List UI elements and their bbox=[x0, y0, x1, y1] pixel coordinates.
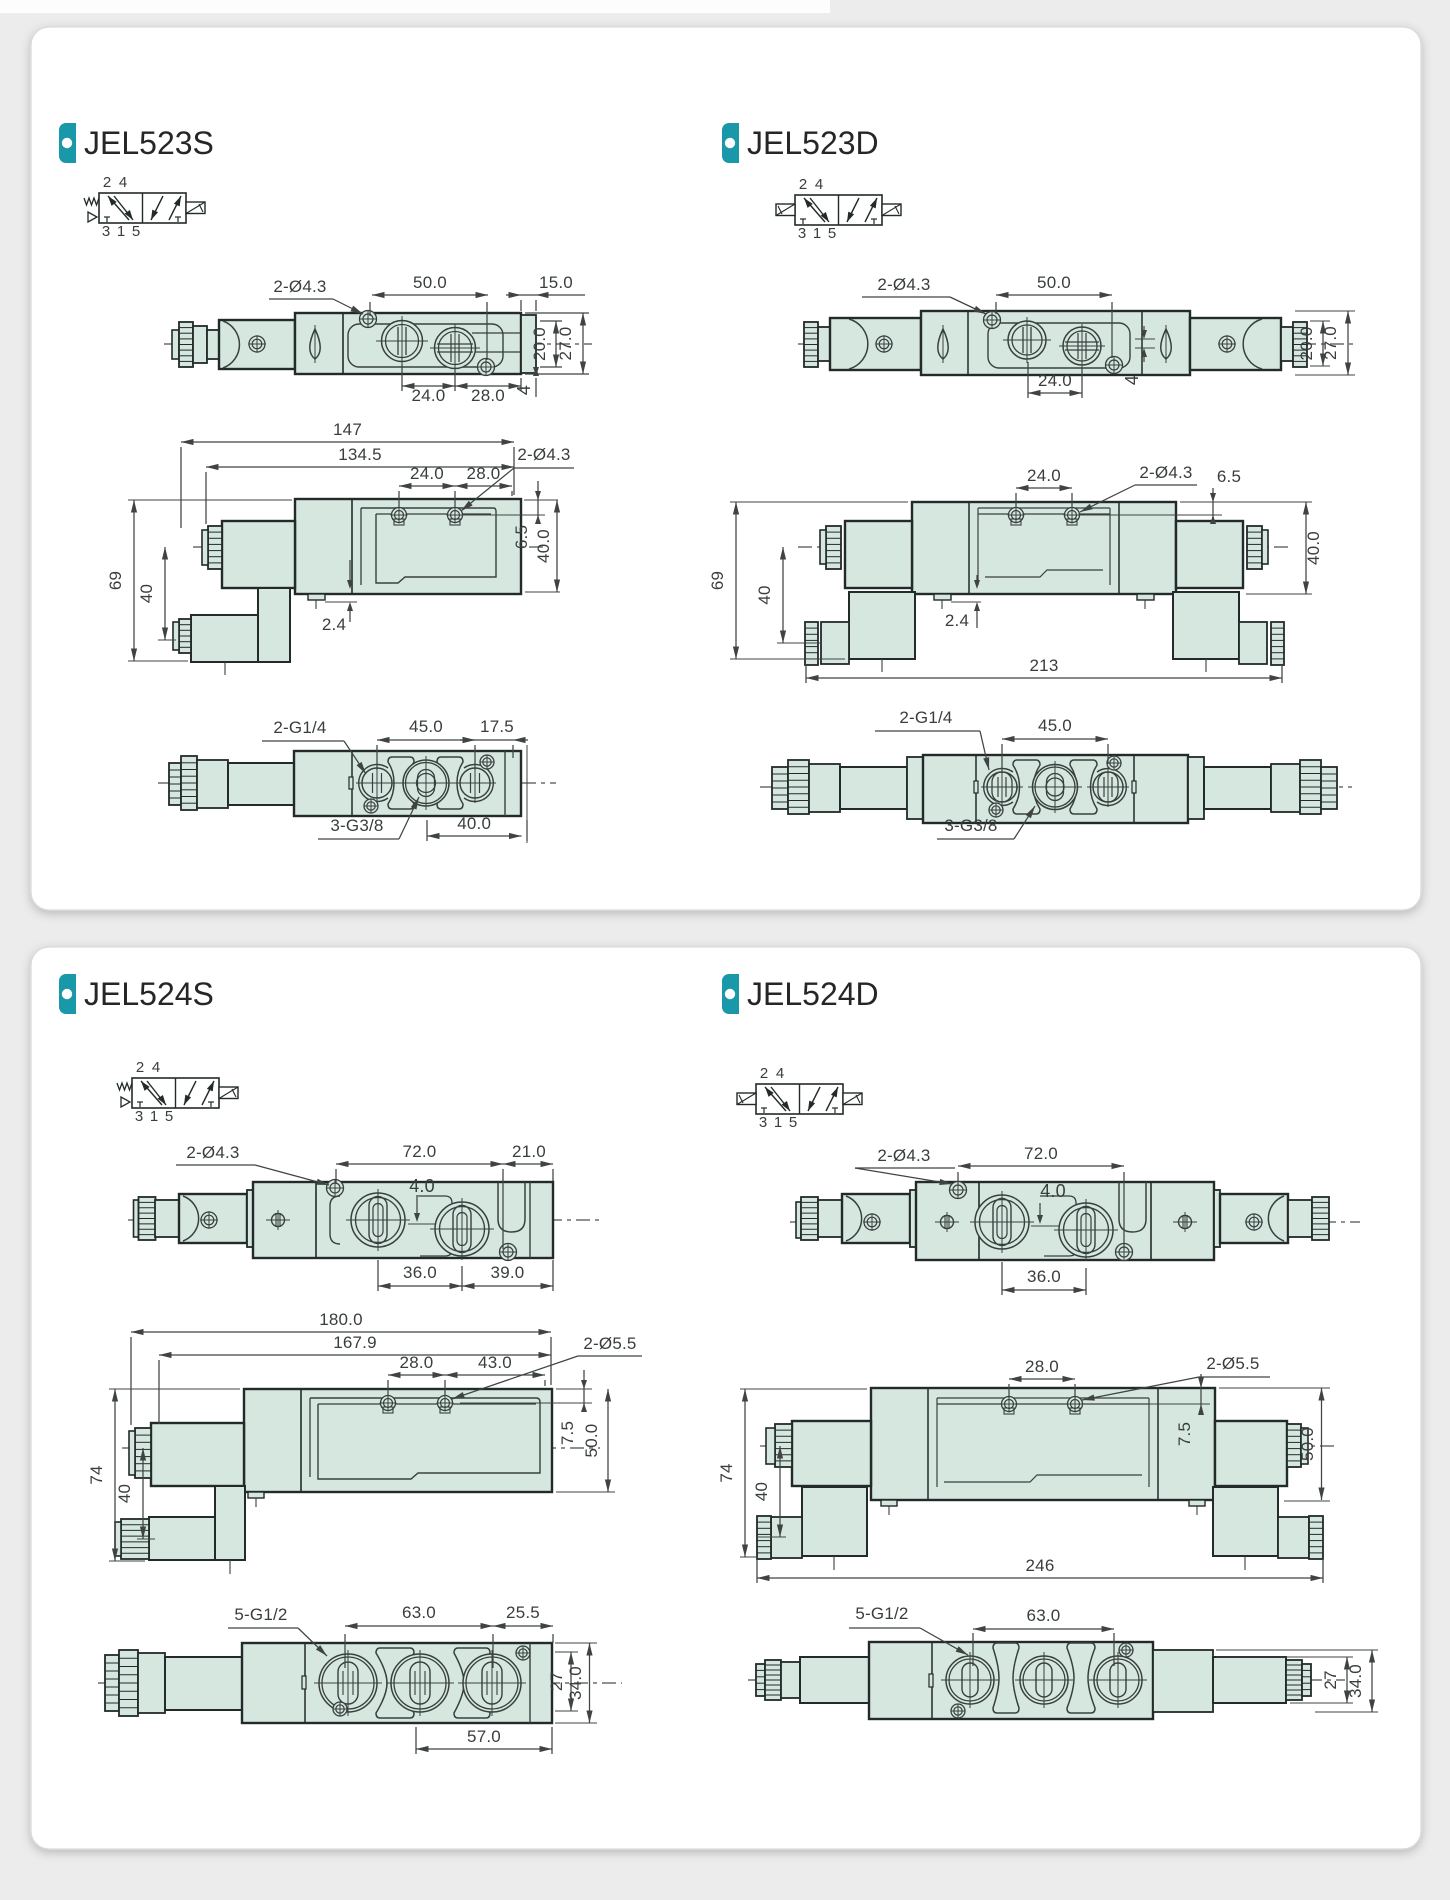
svg-text:36.0: 36.0 bbox=[1027, 1267, 1061, 1286]
svg-text:25.5: 25.5 bbox=[506, 1603, 540, 1622]
svg-text:74: 74 bbox=[717, 1463, 736, 1482]
svg-text:5: 5 bbox=[132, 223, 140, 240]
svg-text:69: 69 bbox=[708, 571, 727, 590]
svg-text:15.0: 15.0 bbox=[539, 273, 573, 292]
svg-text:45.0: 45.0 bbox=[409, 717, 443, 736]
svg-text:28.0: 28.0 bbox=[1025, 1357, 1059, 1376]
svg-text:27: 27 bbox=[1321, 1670, 1340, 1689]
svg-text:4.0: 4.0 bbox=[1040, 1181, 1066, 1201]
svg-text:40.0: 40.0 bbox=[457, 814, 491, 833]
svg-text:24.0: 24.0 bbox=[1038, 371, 1072, 390]
svg-text:2-Ø5.5: 2-Ø5.5 bbox=[1206, 1354, 1259, 1373]
svg-text:63.0: 63.0 bbox=[402, 1603, 436, 1622]
svg-text:40: 40 bbox=[755, 585, 774, 604]
svg-text:3-G3/8: 3-G3/8 bbox=[944, 816, 997, 835]
svg-text:2: 2 bbox=[760, 1065, 768, 1082]
svg-text:2-Ø4.3: 2-Ø4.3 bbox=[877, 275, 930, 294]
svg-text:20.0: 20.0 bbox=[1297, 327, 1316, 361]
svg-text:2-G1/4: 2-G1/4 bbox=[273, 718, 326, 737]
svg-text:2-G1/4: 2-G1/4 bbox=[899, 708, 952, 727]
svg-text:57.0: 57.0 bbox=[467, 1727, 501, 1746]
svg-text:74: 74 bbox=[87, 1465, 106, 1484]
svg-text:69: 69 bbox=[106, 571, 125, 590]
svg-text:20.0: 20.0 bbox=[530, 327, 549, 361]
svg-text:2.4: 2.4 bbox=[945, 611, 969, 630]
svg-text:2: 2 bbox=[799, 176, 807, 193]
svg-text:147: 147 bbox=[333, 420, 362, 439]
svg-text:50.0: 50.0 bbox=[1298, 1427, 1317, 1461]
svg-text:2-Ø5.5: 2-Ø5.5 bbox=[583, 1334, 636, 1353]
svg-text:40: 40 bbox=[115, 1484, 134, 1503]
svg-text:7.5: 7.5 bbox=[558, 1421, 577, 1445]
svg-text:2.4: 2.4 bbox=[322, 615, 346, 634]
svg-text:1: 1 bbox=[774, 1114, 782, 1131]
svg-text:JEL524S: JEL524S bbox=[84, 976, 214, 1012]
svg-text:72.0: 72.0 bbox=[403, 1142, 437, 1161]
svg-text:2-Ø4.3: 2-Ø4.3 bbox=[186, 1143, 239, 1162]
svg-text:39.0: 39.0 bbox=[491, 1263, 525, 1282]
svg-text:5: 5 bbox=[789, 1114, 797, 1131]
svg-text:21.0: 21.0 bbox=[512, 1142, 546, 1161]
svg-text:2: 2 bbox=[136, 1059, 144, 1076]
svg-text:17.5: 17.5 bbox=[480, 717, 514, 736]
svg-text:24.0: 24.0 bbox=[410, 464, 444, 483]
svg-text:134.5: 134.5 bbox=[338, 445, 382, 464]
svg-text:1: 1 bbox=[117, 223, 125, 240]
svg-text:4: 4 bbox=[514, 385, 534, 395]
svg-text:34.0: 34.0 bbox=[1346, 1664, 1365, 1698]
svg-text:2-Ø4.3: 2-Ø4.3 bbox=[273, 277, 326, 296]
svg-text:4: 4 bbox=[1122, 375, 1142, 385]
svg-text:4: 4 bbox=[152, 1059, 160, 1076]
svg-text:3: 3 bbox=[759, 1114, 767, 1131]
svg-text:1: 1 bbox=[813, 225, 821, 242]
svg-text:6.5: 6.5 bbox=[512, 525, 531, 549]
svg-text:2-Ø4.3: 2-Ø4.3 bbox=[1139, 463, 1192, 482]
svg-text:27.0: 27.0 bbox=[1321, 326, 1340, 360]
svg-text:28.0: 28.0 bbox=[471, 386, 505, 405]
svg-text:180.0: 180.0 bbox=[319, 1310, 363, 1329]
svg-text:40.0: 40.0 bbox=[534, 529, 553, 563]
svg-text:JEL523D: JEL523D bbox=[747, 125, 879, 161]
svg-text:JEL524D: JEL524D bbox=[747, 976, 879, 1012]
svg-text:72.0: 72.0 bbox=[1024, 1144, 1058, 1163]
svg-text:JEL523S: JEL523S bbox=[84, 125, 214, 161]
svg-text:7.5: 7.5 bbox=[1175, 1422, 1194, 1446]
svg-text:63.0: 63.0 bbox=[1027, 1606, 1061, 1625]
svg-text:27.0: 27.0 bbox=[556, 327, 575, 361]
svg-text:6.5: 6.5 bbox=[1217, 467, 1241, 486]
svg-text:28.0: 28.0 bbox=[400, 1353, 434, 1372]
svg-text:213: 213 bbox=[1030, 656, 1059, 675]
svg-text:3: 3 bbox=[102, 223, 110, 240]
svg-text:3-G3/8: 3-G3/8 bbox=[330, 816, 383, 835]
svg-text:27: 27 bbox=[547, 1672, 566, 1691]
svg-text:45.0: 45.0 bbox=[1038, 716, 1072, 735]
svg-text:50.0: 50.0 bbox=[1037, 273, 1071, 292]
svg-text:40: 40 bbox=[137, 584, 156, 603]
svg-text:40: 40 bbox=[752, 1482, 771, 1501]
svg-text:2: 2 bbox=[103, 174, 111, 191]
svg-text:3: 3 bbox=[135, 1108, 143, 1125]
svg-text:1: 1 bbox=[150, 1108, 158, 1125]
svg-text:4: 4 bbox=[776, 1065, 784, 1082]
svg-text:5-G1/2: 5-G1/2 bbox=[855, 1604, 908, 1623]
svg-text:246: 246 bbox=[1026, 1556, 1055, 1575]
svg-text:50.0: 50.0 bbox=[582, 1424, 601, 1458]
svg-text:5: 5 bbox=[165, 1108, 173, 1125]
svg-text:28.0: 28.0 bbox=[467, 464, 501, 483]
svg-text:4.0: 4.0 bbox=[409, 1176, 435, 1196]
svg-text:36.0: 36.0 bbox=[403, 1263, 437, 1282]
svg-text:34.0: 34.0 bbox=[566, 1666, 585, 1700]
svg-text:3: 3 bbox=[798, 225, 806, 242]
svg-text:167.9: 167.9 bbox=[333, 1333, 377, 1352]
svg-text:5: 5 bbox=[828, 225, 836, 242]
svg-text:43.0: 43.0 bbox=[478, 1353, 512, 1372]
svg-text:40.0: 40.0 bbox=[1304, 531, 1323, 565]
svg-text:4: 4 bbox=[119, 174, 127, 191]
svg-text:50.0: 50.0 bbox=[413, 273, 447, 292]
svg-text:2-Ø4.3: 2-Ø4.3 bbox=[517, 445, 570, 464]
svg-text:24.0: 24.0 bbox=[1027, 466, 1061, 485]
svg-text:5-G1/2: 5-G1/2 bbox=[234, 1605, 287, 1624]
svg-text:24.0: 24.0 bbox=[412, 386, 446, 405]
svg-text:4: 4 bbox=[815, 176, 823, 193]
svg-text:2-Ø4.3: 2-Ø4.3 bbox=[877, 1146, 930, 1165]
